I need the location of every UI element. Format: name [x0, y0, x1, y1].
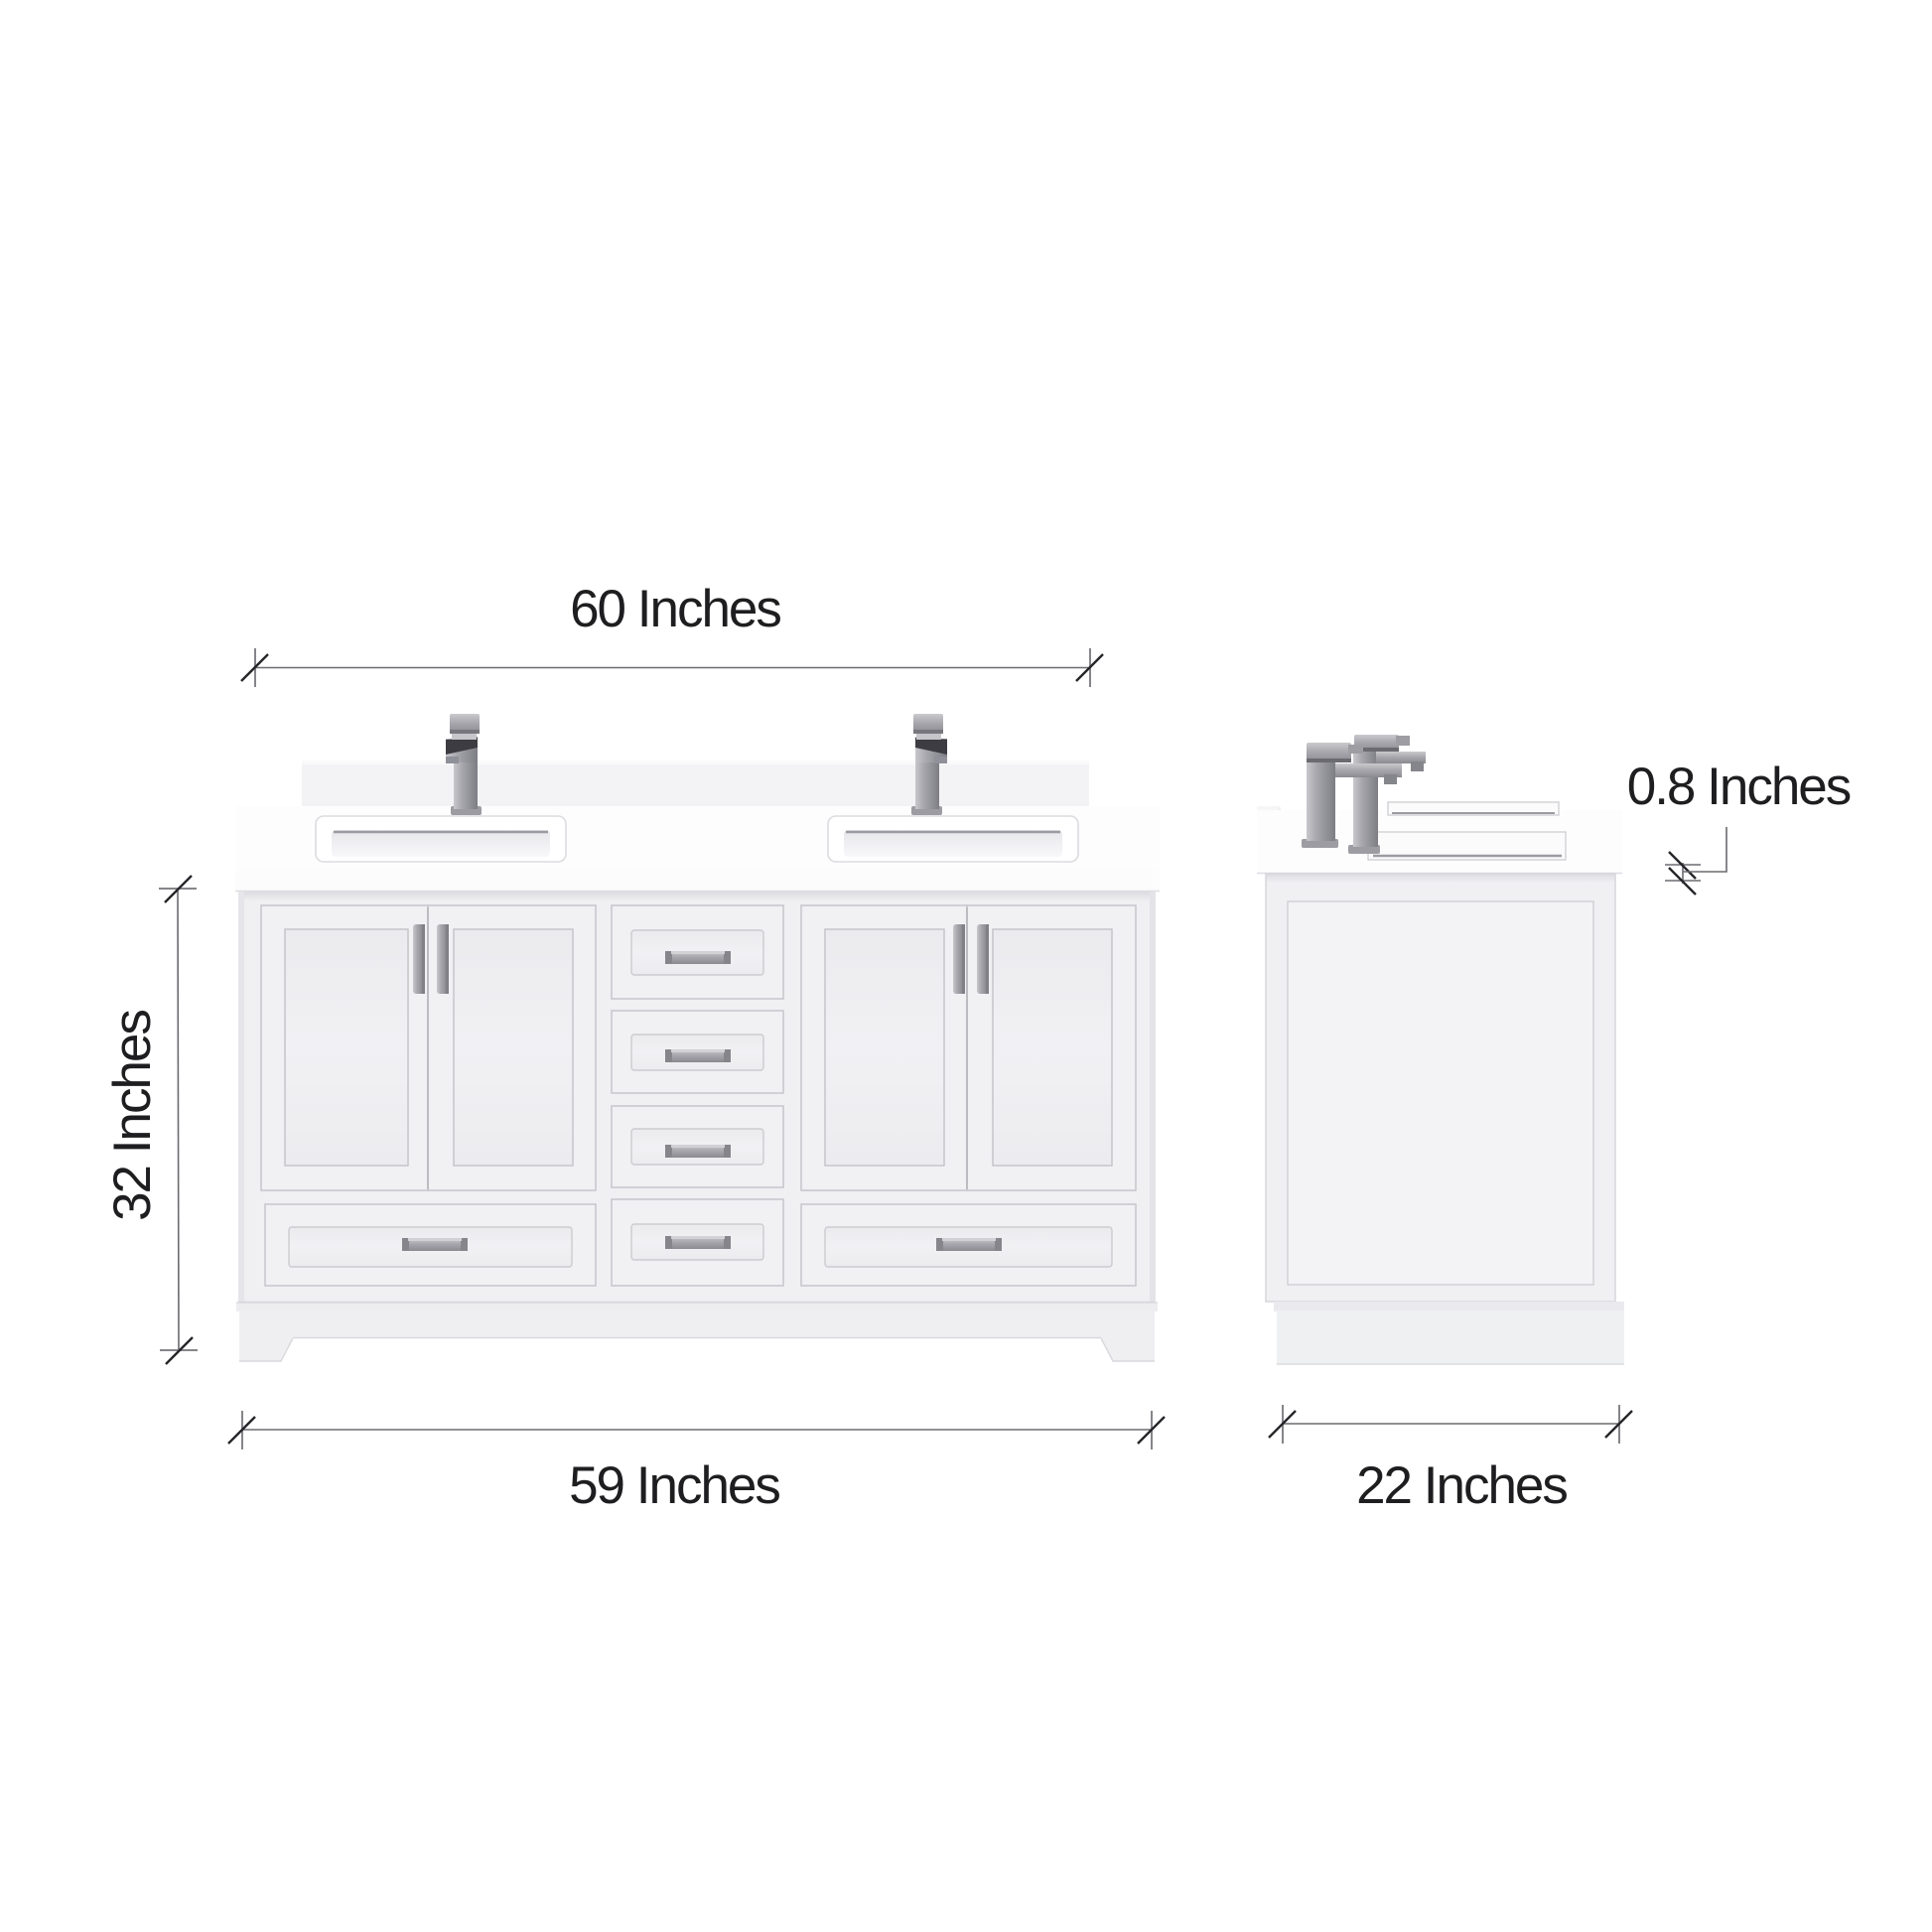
svg-text:0.8 Inches: 0.8 Inches	[1627, 758, 1851, 816]
svg-text:22 Inches: 22 Inches	[1356, 1456, 1567, 1515]
svg-text:32 Inches: 32 Inches	[103, 1011, 162, 1221]
svg-text:60 Inches: 60 Inches	[570, 580, 780, 638]
svg-text:59 Inches: 59 Inches	[569, 1456, 779, 1515]
